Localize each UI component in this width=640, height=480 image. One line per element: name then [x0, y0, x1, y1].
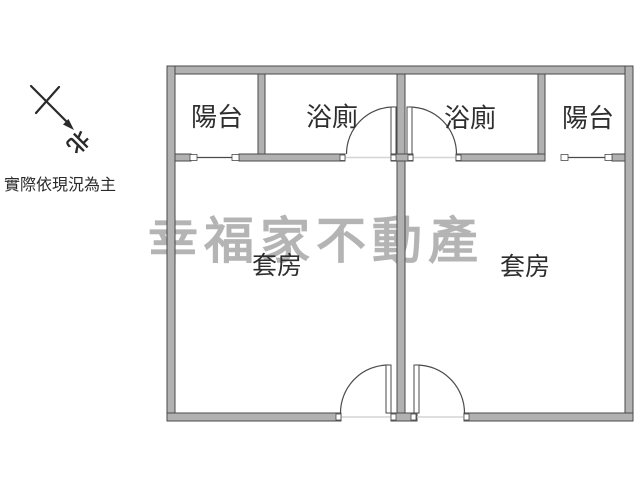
jamb-notch: [336, 414, 341, 420]
jamb-notch: [411, 414, 416, 420]
door-swing-arc: [417, 365, 465, 413]
wall-right: [625, 66, 633, 421]
wall-bath-left-bottom: [239, 154, 345, 161]
room-label-bathroom-right: 浴廁: [444, 104, 496, 134]
jamb-notch: [391, 414, 396, 420]
wall-bottom-left-segment: [167, 413, 341, 421]
door-suite-left: [341, 365, 392, 413]
floorplan-drawing: 北 實際依現況為主 幸福家不動產: [0, 0, 640, 480]
wall-bottom-right-segment: [464, 413, 633, 421]
window-jamb: [605, 155, 612, 161]
compass-north-arrow: 北: [31, 86, 94, 158]
wall-bath-right-bottom: [456, 154, 545, 161]
wall-left: [167, 66, 175, 421]
wall-center-divider: [397, 74, 405, 413]
wall-balcony-bath-left: [258, 74, 265, 154]
jamb-notch: [456, 155, 461, 161]
door-leaf: [414, 365, 419, 413]
compass-arrow-shaft: [31, 86, 66, 121]
room-label-suite-right: 套房: [500, 252, 550, 281]
jamb-notch: [408, 155, 413, 161]
window-jamb: [232, 155, 239, 161]
wall-top: [167, 66, 633, 74]
room-label-balcony-left: 陽台: [191, 103, 243, 133]
room-label-suite-left: 套房: [252, 251, 302, 280]
door-leaf: [391, 107, 396, 154]
window-balcony-right: [561, 155, 612, 161]
door-leaf: [386, 365, 391, 413]
jamb-notch: [464, 414, 469, 420]
window-balcony-left: [190, 155, 239, 161]
wall-bath-balcony-right: [538, 74, 545, 154]
window-jamb: [561, 155, 568, 161]
door-leaf: [407, 107, 412, 154]
door-suite-right: [414, 365, 465, 413]
watermark: 幸福家不動產: [148, 212, 484, 270]
compass-north-label: 北: [62, 126, 94, 158]
room-label-balcony-right: 陽台: [562, 104, 614, 134]
window-jamb: [190, 155, 197, 161]
wall-balcony-left-stub: [175, 154, 191, 161]
wall-balcony-right-stub: [612, 154, 625, 161]
jamb-notch: [391, 155, 396, 161]
floorplan-canvas: 北 實際依現況為主 幸福家不動產: [0, 0, 640, 480]
door-swing-arc: [341, 365, 389, 413]
room-label-bathroom-left: 浴廁: [306, 103, 358, 133]
disclaimer-note: 實際依現況為主: [4, 175, 116, 194]
jamb-notch: [340, 155, 345, 161]
